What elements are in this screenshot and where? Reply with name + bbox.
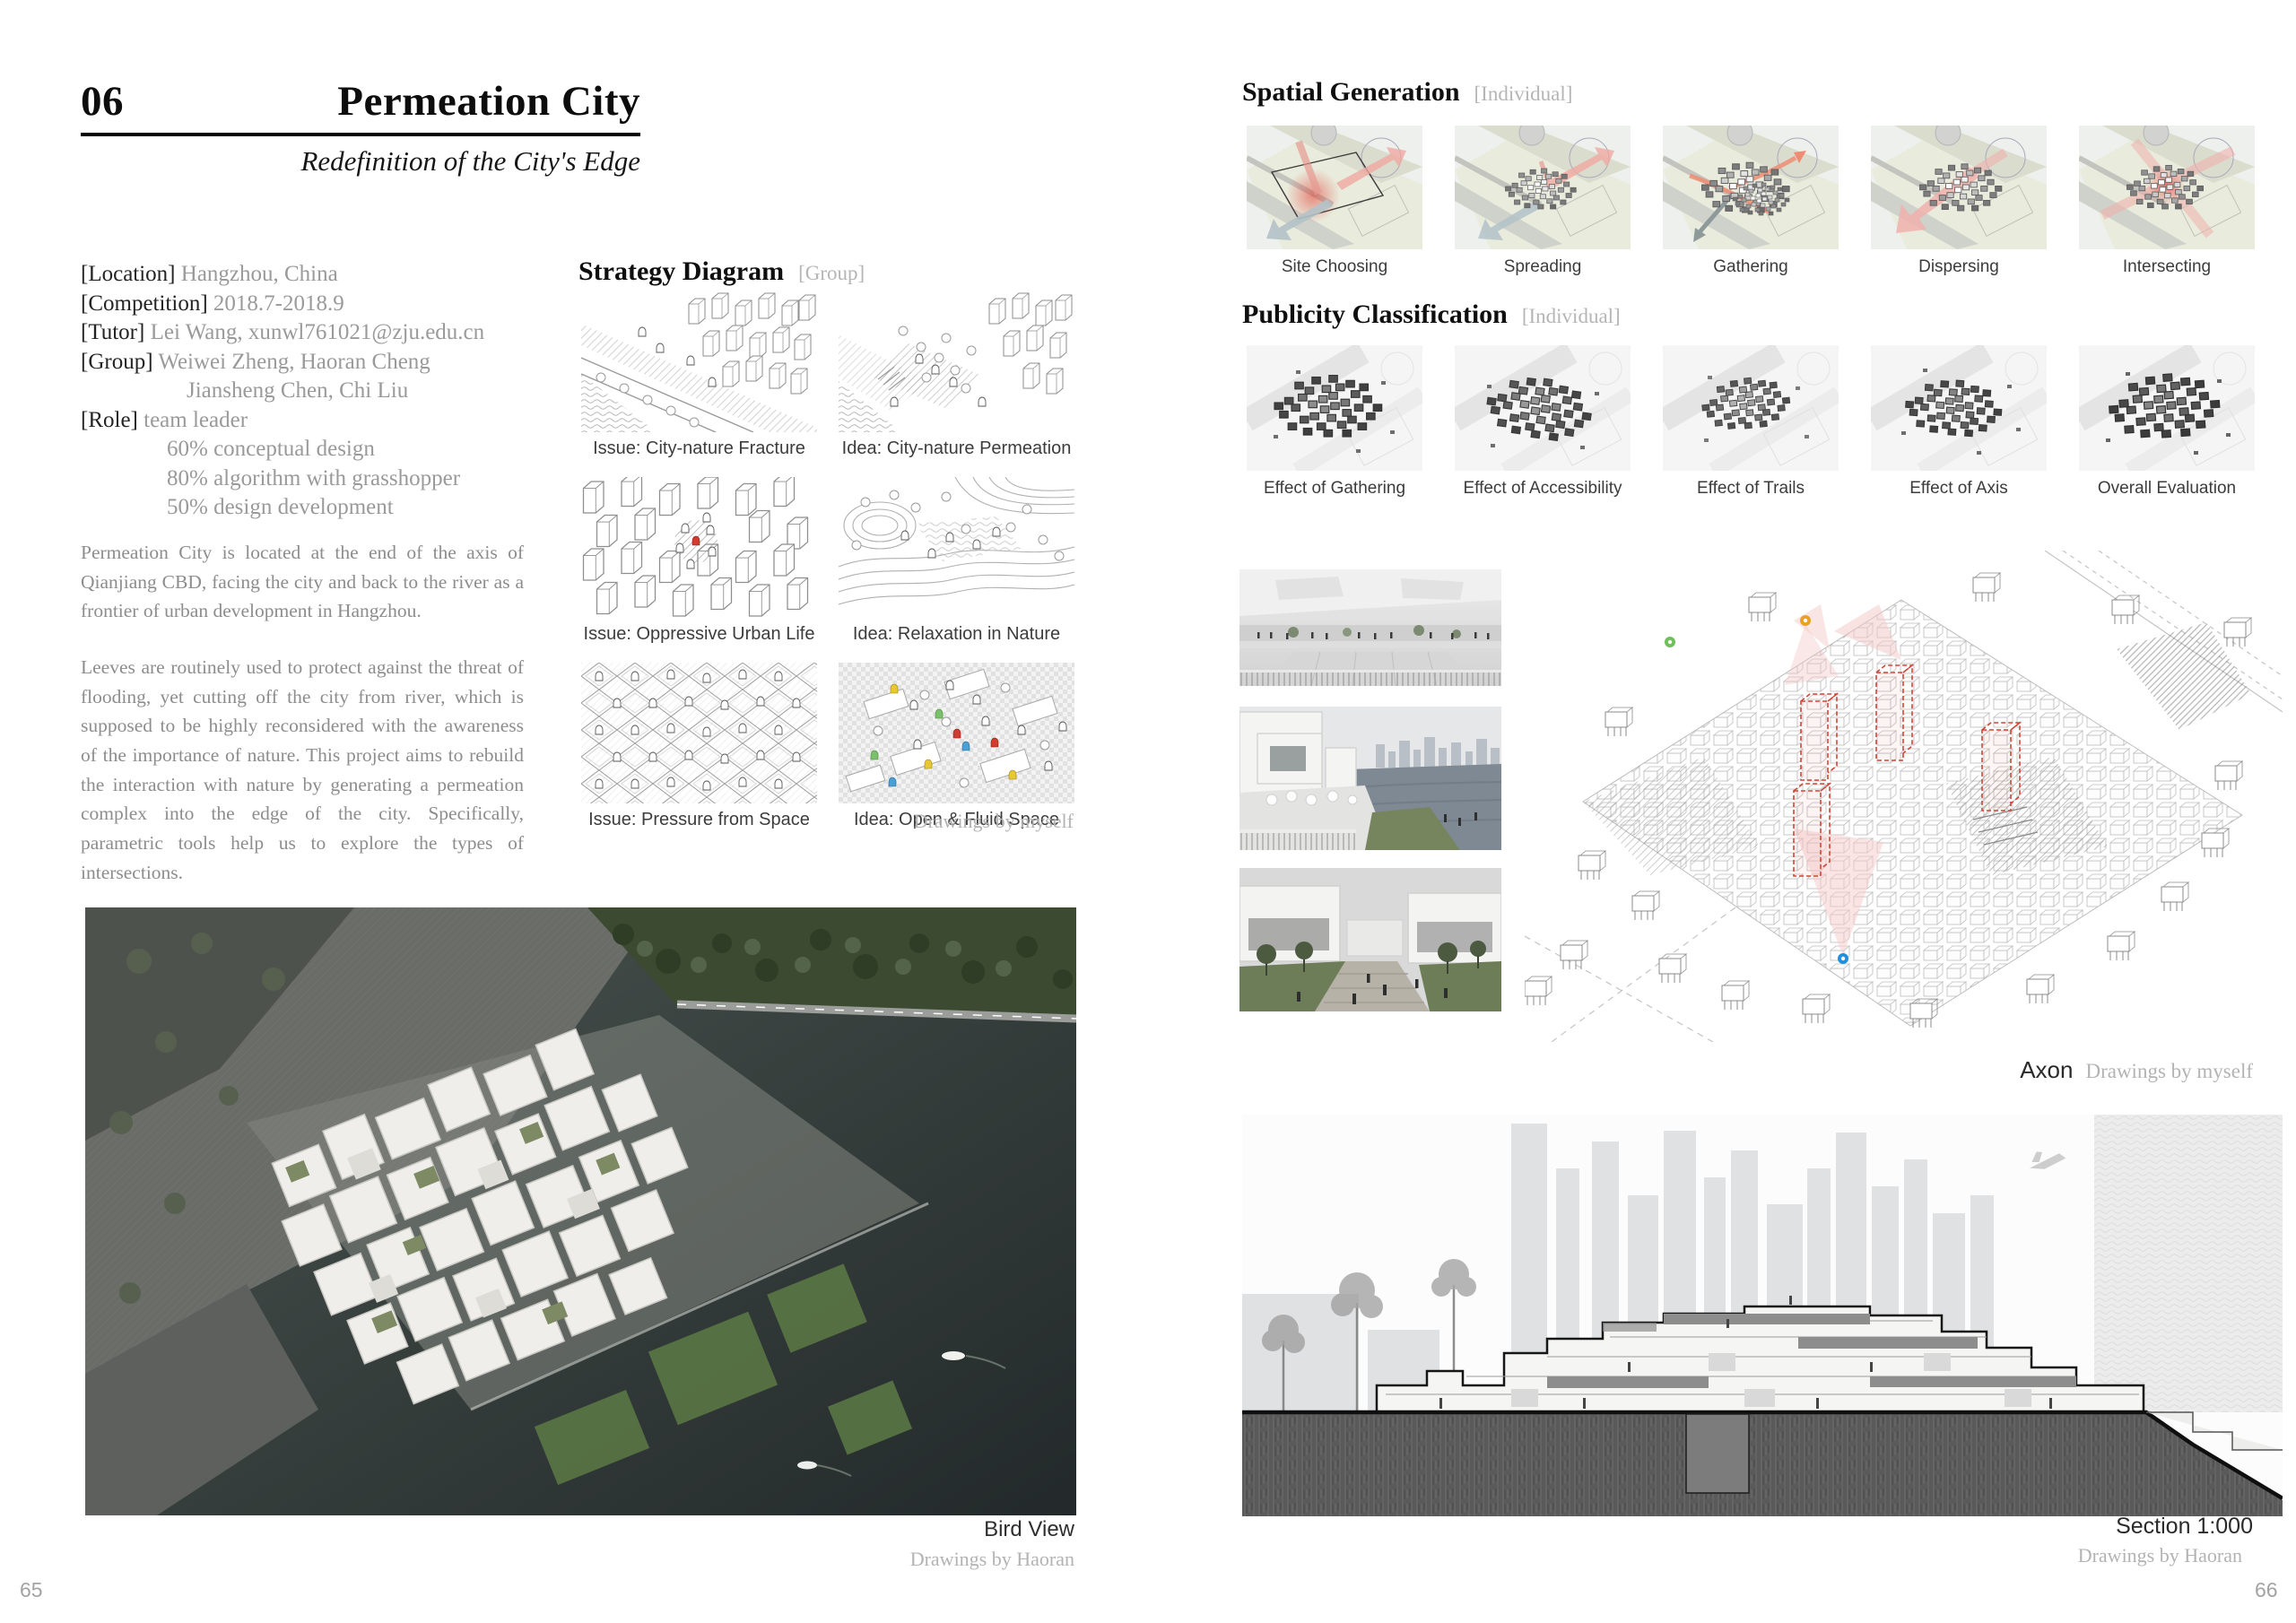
spatial-caption: Dispersing <box>1871 257 2047 277</box>
publicity-caption: Effect of Axis <box>1871 479 2047 499</box>
spatial-thumb-dispersing: Dispersing <box>1871 126 2047 277</box>
render-park-image <box>1239 868 1501 1011</box>
spatial-generation-row: Site Choosing Spreading <box>1247 126 2257 277</box>
strategy-caption: Idea: Relaxation in Nature <box>839 624 1074 645</box>
publicity-classification-heading: Publicity Classification[Individual] <box>1242 299 1621 330</box>
render-waterfront <box>1239 707 1501 850</box>
publicity-classification-row: Effect of Gathering Effect of Accessibil… <box>1247 345 2257 499</box>
portfolio-spread: 06 Permeation City Redefinition of the C… <box>0 0 2296 1623</box>
publicity-caption: Effect of Trails <box>1663 479 1839 499</box>
publicity-overall-image <box>2079 345 2255 471</box>
info-label: [Competition] <box>81 291 208 316</box>
spatial-spreading-image <box>1455 126 1631 249</box>
info-value: Lei Wang, xunwl761021@zju.edu.cn <box>151 320 485 344</box>
spatial-gathering-image <box>1663 126 1839 249</box>
publicity-accessibility-image <box>1455 345 1631 471</box>
axon-credit: Drawings by myself <box>2085 1060 2253 1082</box>
strategy-diagram-relaxation-image <box>839 477 1074 618</box>
heading-text: Strategy Diagram <box>578 256 784 286</box>
strategy-card-oppressive: Issue: Oppressive Urban Life <box>581 477 817 645</box>
section-credit: Drawings by Haoran <box>1894 1544 2242 1567</box>
info-value: Hangzhou, China <box>181 262 338 286</box>
strategy-card-openfluid: Idea: Open & Fluid Space <box>839 663 1074 830</box>
publicity-thumb-overall: Overall Evaluation <box>2079 345 2255 499</box>
info-value: team leader <box>143 408 248 432</box>
info-value: 2018.7-2018.9 <box>213 291 344 316</box>
heading-tag: [Individual] <box>1522 305 1621 327</box>
description-paragraph: Permeation City is located at the end of… <box>81 538 524 626</box>
info-label: [Group] <box>81 350 153 374</box>
info-line-role-2: 80% algorithm with grasshopper <box>81 464 583 494</box>
strategy-credit: Drawings by myself <box>578 810 1074 833</box>
axon-image <box>1525 551 2283 1042</box>
publicity-thumb-trails: Effect of Trails <box>1663 345 1839 499</box>
page-number-right: 66 <box>2255 1578 2278 1602</box>
project-number: 06 <box>81 77 124 126</box>
spatial-caption: Spreading <box>1455 257 1631 277</box>
heading-text: Spatial Generation <box>1242 77 1460 107</box>
project-title-row: 06 Permeation City <box>81 77 640 136</box>
info-label: [Location] <box>81 262 176 286</box>
axon-label: Axon <box>2020 1056 2073 1083</box>
publicity-thumb-gathering: Effect of Gathering <box>1247 345 1422 499</box>
strategy-card-permeation: Idea: City-nature Permeation <box>839 291 1074 459</box>
render-interior-terraces <box>1239 569 1501 686</box>
info-line-competition: [Competition] 2018.7-2018.9 <box>81 290 583 319</box>
heading-tag: [Group] <box>798 262 865 284</box>
info-label: [Tutor] <box>81 320 144 344</box>
spatial-caption: Intersecting <box>2079 257 2255 277</box>
publicity-caption: Overall Evaluation <box>2079 479 2255 499</box>
heading-text: Publicity Classification <box>1242 299 1508 329</box>
info-line-role-1: 60% conceptual design <box>81 435 583 464</box>
strategy-card-fracture: Issue: City-nature Fracture <box>581 291 817 459</box>
publicity-thumb-axis: Effect of Axis <box>1871 345 2047 499</box>
render-interior-image <box>1239 569 1501 686</box>
strategy-diagram-openfluid-image <box>839 663 1074 803</box>
publicity-gathering-image <box>1247 345 1422 471</box>
info-line-group-cont: Jiansheng Chen, Chi Liu <box>81 377 583 406</box>
strategy-diagram-oppressive-image <box>581 477 817 618</box>
info-label: [Role] <box>81 408 138 432</box>
info-line-role: [Role] team leader <box>81 406 583 436</box>
bird-view-credit: Drawings by Haoran <box>628 1548 1074 1571</box>
publicity-caption: Effect of Gathering <box>1247 479 1422 499</box>
info-value: 80% algorithm with grasshopper <box>167 466 460 490</box>
project-description: Permeation City is located at the end of… <box>81 538 524 914</box>
strategy-caption: Idea: City-nature Permeation <box>839 438 1074 459</box>
publicity-thumb-accessibility: Effect of Accessibility <box>1455 345 1631 499</box>
project-header: 06 Permeation City Redefinition of the C… <box>81 77 640 178</box>
strategy-diagram-pressure-image <box>581 663 817 803</box>
spatial-dispersing-image <box>1871 126 2047 249</box>
strategy-caption: Issue: City-nature Fracture <box>581 438 817 459</box>
render-waterfront-image <box>1239 707 1501 850</box>
heading-tag: [Individual] <box>1474 82 1573 105</box>
info-value: 50% design development <box>167 495 394 519</box>
spatial-thumb-intersecting: Intersecting <box>2079 126 2255 277</box>
publicity-caption: Effect of Accessibility <box>1455 479 1631 499</box>
publicity-axis-image <box>1871 345 2047 471</box>
strategy-card-relaxation: Idea: Relaxation in Nature <box>839 477 1074 645</box>
project-subtitle: Redefinition of the City's Edge <box>81 145 640 178</box>
axon-caption-row: AxonDrawings by myself <box>1794 1056 2253 1084</box>
render-column <box>1239 569 1501 1018</box>
info-value: 60% conceptual design <box>167 437 375 461</box>
bird-view-caption: Bird View <box>628 1517 1074 1542</box>
strategy-diagram-grid: Issue: City-nature Fracture Idea: City-n… <box>581 291 1076 830</box>
section-caption: Section 1:000 <box>1894 1514 2253 1540</box>
bird-view-image <box>85 907 1076 1515</box>
spatial-thumb-spreading: Spreading <box>1455 126 1631 277</box>
spatial-caption: Site Choosing <box>1247 257 1422 277</box>
description-paragraph: Leeves are routinely used to protect aga… <box>81 653 524 887</box>
spatial-generation-heading: Spatial Generation[Individual] <box>1242 77 1572 108</box>
info-line-role-3: 50% design development <box>81 493 583 523</box>
project-info-block: [Location] Hangzhou, China [Competition]… <box>81 260 583 523</box>
render-ground-park <box>1239 868 1501 1011</box>
spatial-caption: Gathering <box>1663 257 1839 277</box>
spatial-thumb-gathering: Gathering <box>1663 126 1839 277</box>
info-value: Jiansheng Chen, Chi Liu <box>187 378 408 403</box>
info-line-location: [Location] Hangzhou, China <box>81 260 583 290</box>
project-title: Permeation City <box>337 77 640 126</box>
strategy-caption: Issue: Oppressive Urban Life <box>581 624 817 645</box>
info-value: Weiwei Zheng, Haoran Cheng <box>158 350 430 374</box>
strategy-diagram-heading: Strategy Diagram[Group] <box>578 256 865 287</box>
info-line-tutor: [Tutor] Lei Wang, xunwl761021@zju.edu.cn <box>81 318 583 348</box>
page-number-left: 65 <box>20 1578 43 1602</box>
strategy-diagram-fracture-image <box>581 291 817 432</box>
strategy-card-pressure: Issue: Pressure from Space <box>581 663 817 830</box>
info-line-group: [Group] Weiwei Zheng, Haoran Cheng <box>81 348 583 378</box>
bird-view-render <box>85 907 1076 1515</box>
section-drawing <box>1242 1115 2283 1516</box>
spatial-intersecting-image <box>2079 126 2255 249</box>
spatial-site-choosing-image <box>1247 126 1422 249</box>
section-image <box>1242 1115 2283 1516</box>
spatial-thumb-site-choosing: Site Choosing <box>1247 126 1422 277</box>
publicity-trails-image <box>1663 345 1839 471</box>
axon-drawing <box>1525 551 2283 1042</box>
strategy-diagram-permeation-image <box>839 291 1074 432</box>
